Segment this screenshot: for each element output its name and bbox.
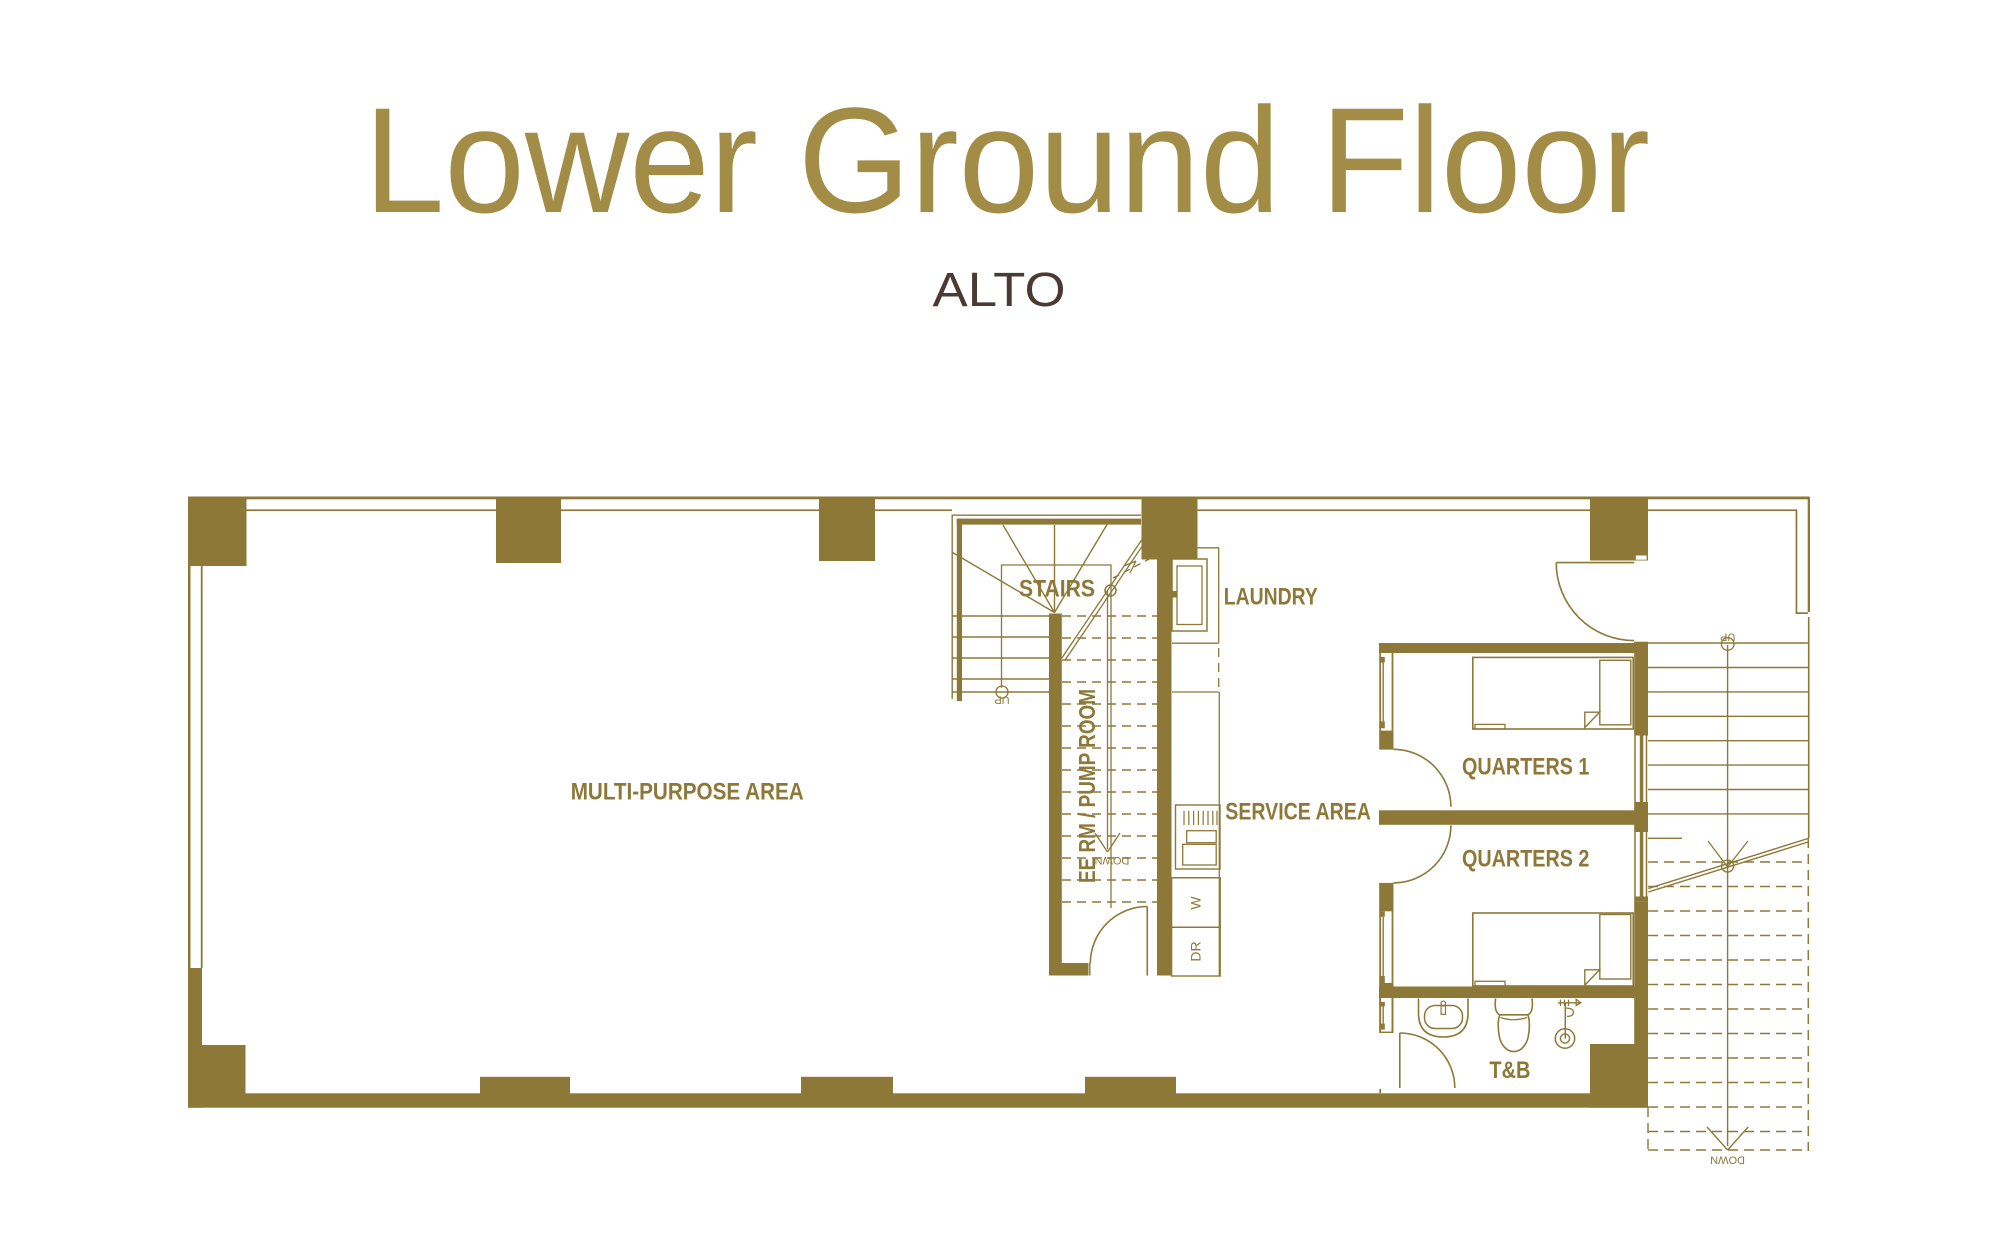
svg-text:Lower Ground Floor: Lower Ground Floor — [364, 76, 1650, 244]
svg-text:QUARTERS 2: QUARTERS 2 — [1462, 845, 1589, 872]
svg-text:LAUNDRY: LAUNDRY — [1224, 584, 1318, 611]
svg-text:EE RM / PUMP ROOM: EE RM / PUMP ROOM — [1074, 689, 1100, 883]
svg-text:ALTO: ALTO — [933, 264, 1066, 317]
svg-text:DOWN: DOWN — [1710, 1154, 1745, 1166]
svg-text:UP: UP — [994, 694, 1009, 706]
svg-text:QUARTERS 1: QUARTERS 1 — [1462, 754, 1589, 781]
svg-text:STAIRS: STAIRS — [1019, 576, 1095, 603]
svg-text:DR: DR — [1188, 941, 1204, 961]
svg-text:SERVICE AREA: SERVICE AREA — [1225, 798, 1371, 825]
svg-text:T&B: T&B — [1489, 1057, 1530, 1084]
svg-text:W: W — [1188, 896, 1204, 910]
svg-text:UP: UP — [1720, 631, 1735, 643]
svg-text:MULTI-PURPOSE AREA: MULTI-PURPOSE AREA — [571, 779, 804, 806]
